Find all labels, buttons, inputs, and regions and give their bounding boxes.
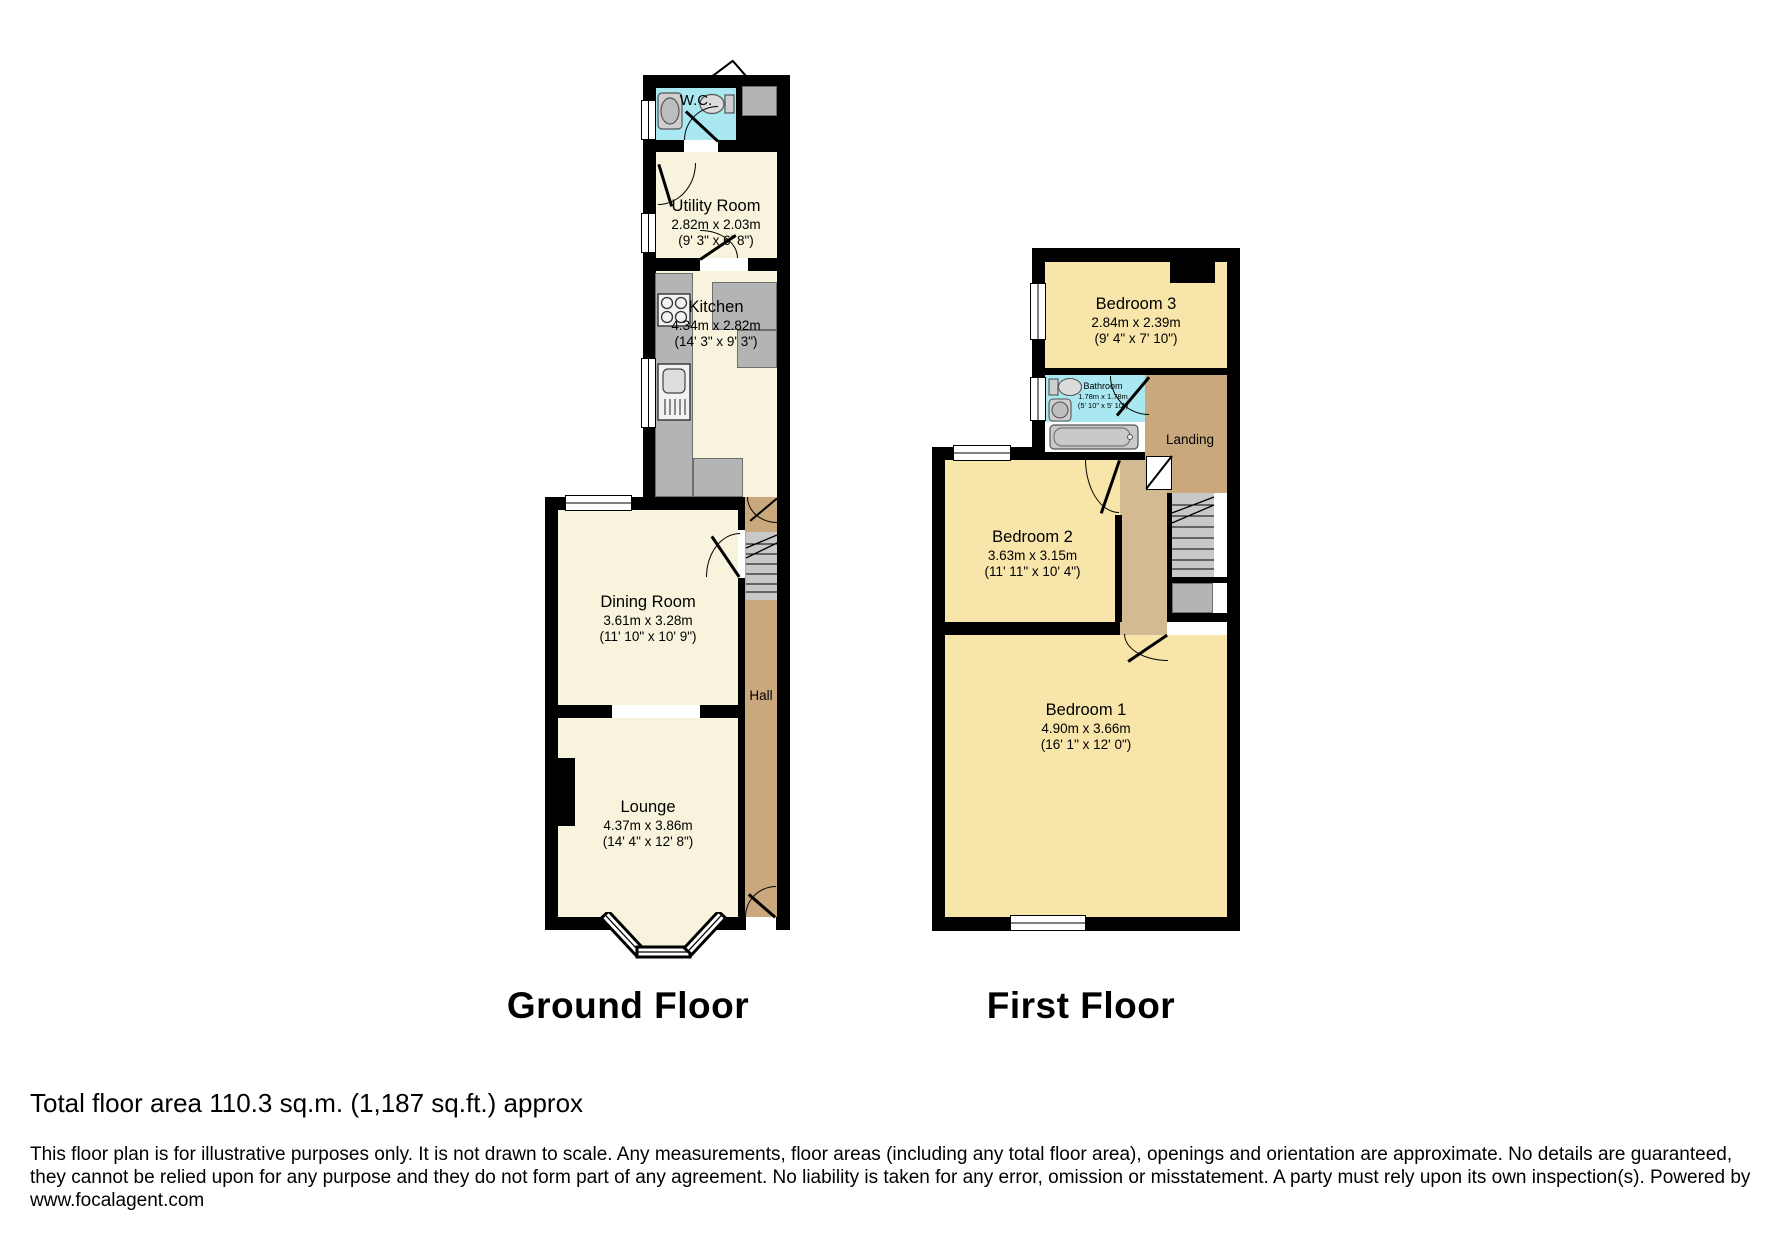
window: [641, 100, 656, 140]
room-name: Bedroom 2: [945, 527, 1120, 548]
wall: [748, 258, 777, 271]
room-name: W.C.: [680, 92, 713, 109]
room-label-landing: Landing: [1150, 432, 1230, 447]
wall: [1032, 368, 1240, 375]
room-name: Lounge: [558, 797, 738, 818]
room-dims-ft: (9' 4" x 7' 10"): [1045, 331, 1227, 347]
room-dims-ft: (9' 3" x 6' 8"): [646, 233, 786, 249]
room-label-bedroom1: Bedroom 1 4.90m x 3.66m (16' 1" x 12' 0"…: [945, 700, 1227, 752]
room-label-kitchen: Kitchen 4.34m x 2.82m (14' 3" x 9' 3"): [646, 297, 786, 349]
wall: [1086, 917, 1240, 931]
stairs: [746, 532, 777, 600]
floorplan-page: W.C. Utility Room 2.82m x 2.03m (9' 3" x…: [0, 0, 1771, 1239]
website-link: www.focalagent.com: [30, 1189, 204, 1212]
wall: [558, 705, 612, 718]
room-dims-m: 3.61m x 3.28m: [558, 613, 738, 629]
room-dims-m: 3.63m x 3.15m: [945, 548, 1120, 564]
room-label-utility: Utility Room 2.82m x 2.03m (9' 3" x 6' 8…: [646, 196, 786, 248]
room-bedroom1: [945, 635, 1227, 917]
wall: [738, 510, 745, 530]
window: [641, 358, 656, 428]
room-dims-ft: (5' 10" x 5' 10"): [1068, 401, 1138, 410]
window: [1030, 283, 1046, 340]
wc-storage-box: [742, 86, 777, 116]
room-name: Bedroom 3: [1045, 294, 1227, 315]
first-floor-title: First Floor: [931, 985, 1231, 1027]
stairs: [1172, 493, 1214, 577]
wall: [1227, 248, 1240, 931]
wall: [932, 622, 1120, 635]
room-dims-m: 2.82m x 2.03m: [646, 217, 786, 233]
room-label-lounge: Lounge 4.37m x 3.86m (14' 4" x 12' 8"): [558, 797, 738, 849]
wall: [643, 140, 684, 152]
disclaimer-line-2: they cannot be relied upon for any purpo…: [30, 1166, 1750, 1189]
room-label-bedroom3: Bedroom 3 2.84m x 2.39m (9' 4" x 7' 10"): [1045, 294, 1227, 346]
room-label-hall: Hall: [733, 688, 789, 703]
room-dims-ft: (14' 4" x 12' 8"): [558, 834, 738, 850]
kitchen-counter: [693, 458, 743, 497]
window: [1030, 377, 1046, 421]
wall: [932, 917, 1010, 931]
room-name: Bathroom: [1068, 381, 1138, 392]
storage-block: [1172, 583, 1213, 613]
wall: [545, 497, 558, 930]
room-dims-m: 4.34m x 2.82m: [646, 318, 786, 334]
window: [1010, 915, 1086, 931]
wall: [632, 497, 745, 510]
total-floor-area: Total floor area 110.3 sq.m. (1,187 sq.f…: [30, 1088, 583, 1119]
room-name: Utility Room: [646, 196, 786, 217]
bathtub-icon: [1049, 424, 1139, 450]
room-dims-ft: (11' 11" x 10' 4"): [945, 564, 1120, 580]
room-label-bathroom: Bathroom 1.78m x 1.78m (5' 10" x 5' 10"): [1068, 381, 1138, 410]
room-dims-m: 1.78m x 1.78m: [1068, 392, 1138, 401]
kitchen-sink-icon: [657, 363, 691, 421]
bay-window: [595, 912, 780, 970]
room-name: Dining Room: [558, 592, 738, 613]
window: [565, 495, 632, 511]
wall: [1170, 262, 1215, 283]
room-name: Hall: [749, 688, 772, 703]
wall: [656, 258, 700, 271]
room-dims-ft: (11' 10" x 10' 9"): [558, 629, 738, 645]
window: [953, 445, 1011, 461]
wall: [738, 578, 745, 917]
room-name: Kitchen: [646, 297, 786, 318]
room-label-dining: Dining Room 3.61m x 3.28m (11' 10" x 10'…: [558, 592, 738, 644]
room-label-bedroom2: Bedroom 2 3.63m x 3.15m (11' 11" x 10' 4…: [945, 527, 1120, 579]
wall: [700, 705, 738, 718]
room-dims-m: 4.90m x 3.66m: [945, 721, 1227, 737]
room-name: Landing: [1166, 432, 1214, 447]
ground-floor-title: Ground Floor: [478, 985, 778, 1027]
room-dims-ft: (14' 3" x 9' 3"): [646, 334, 786, 350]
room-dims-m: 4.37m x 3.86m: [558, 818, 738, 834]
room-dims-ft: (16' 1" x 12' 0"): [945, 737, 1227, 753]
room-label-wc: W.C.: [664, 92, 728, 109]
disclaimer-line-1: This floor plan is for illustrative purp…: [30, 1143, 1732, 1166]
wall: [718, 140, 777, 152]
wall: [1172, 613, 1227, 622]
room-dims-m: 2.84m x 2.39m: [1045, 315, 1227, 331]
room-name: Bedroom 1: [945, 700, 1227, 721]
